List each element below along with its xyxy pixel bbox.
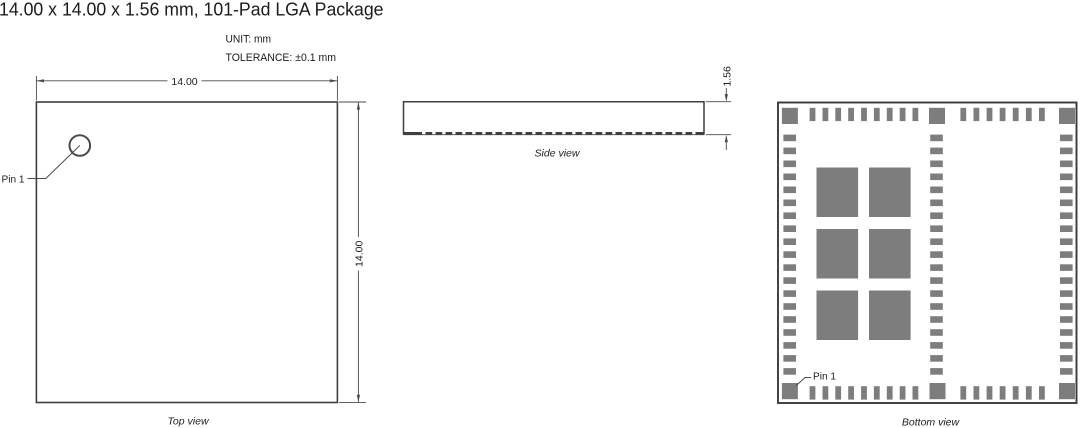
svg-text:Pin 1: Pin 1: [2, 174, 25, 185]
svg-text:Pin 1: Pin 1: [813, 372, 836, 383]
svg-text:Bottom view: Bottom view: [902, 417, 961, 428]
svg-text:1.56: 1.56: [722, 66, 734, 87]
svg-text:14.00 x 14.00 x 1.56 mm, 101-P: 14.00 x 14.00 x 1.56 mm, 101-Pad LGA Pac…: [0, 0, 384, 20]
svg-text:UNIT: mm: UNIT: mm: [226, 33, 272, 45]
svg-text:Top view: Top view: [167, 416, 209, 428]
svg-text:14.00: 14.00: [354, 241, 366, 267]
svg-text:TOLERANCE: ±0.1 mm: TOLERANCE: ±0.1 mm: [226, 52, 337, 64]
svg-text:14.00: 14.00: [171, 76, 197, 88]
svg-text:Side view: Side view: [535, 148, 581, 160]
